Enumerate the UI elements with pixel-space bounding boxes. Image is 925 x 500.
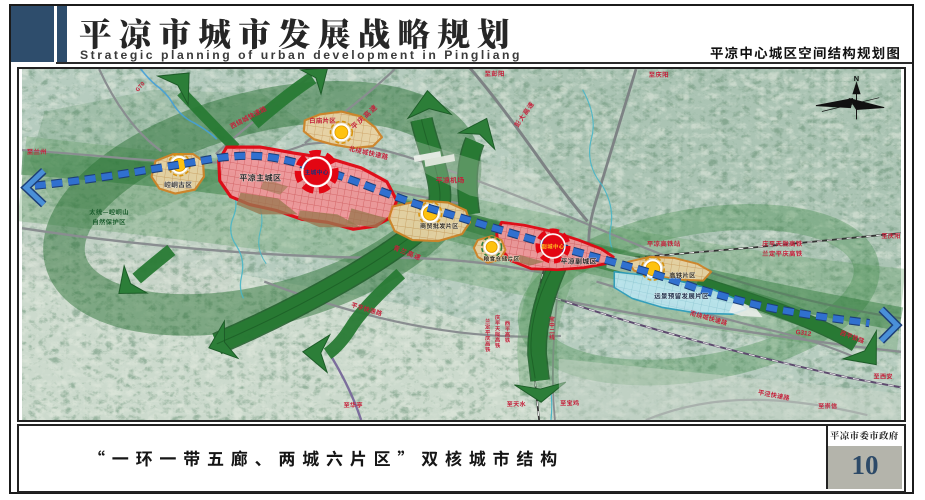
svg-text:N: N bbox=[854, 74, 859, 83]
